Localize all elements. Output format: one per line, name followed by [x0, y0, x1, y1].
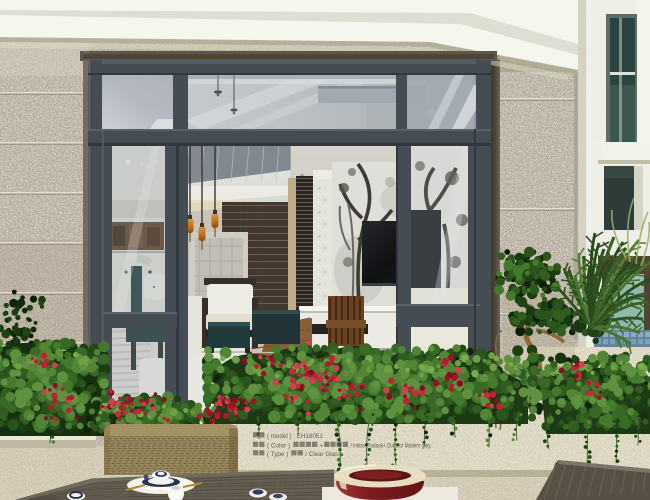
- svg-text:/ Clear Glass: / Clear Glass: [305, 451, 341, 458]
- svg-text:( Color ) :: ( Color ) :: [267, 443, 294, 450]
- svg-text:+: +: [320, 443, 324, 450]
- svg-text:( model ) : EH16051: ( model ) : EH16051: [267, 433, 323, 440]
- svg-text:/ Indoor Padauk+ Outdoor Moder: / Indoor Padauk+ Outdoor Modern gray: [351, 443, 432, 450]
- svg-text:( Type ) :: ( Type ) :: [267, 451, 292, 458]
